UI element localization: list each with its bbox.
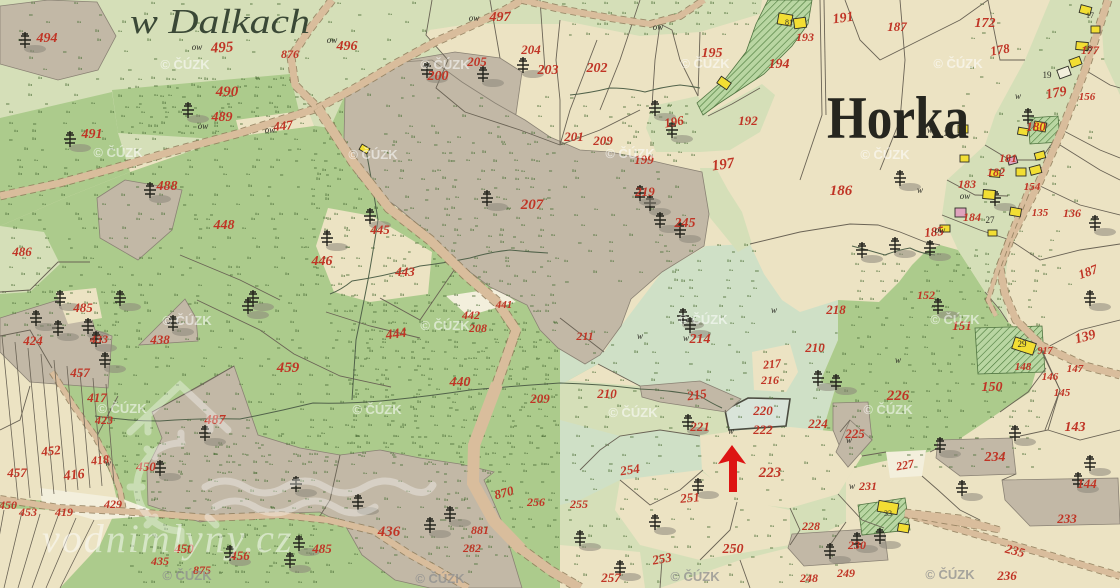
svg-text:18: 18 <box>1084 44 1092 53</box>
svg-text:433: 433 <box>89 332 108 346</box>
svg-text:203: 203 <box>537 63 559 78</box>
svg-text:193: 193 <box>796 30 814 44</box>
svg-text:191: 191 <box>832 10 855 28</box>
svg-text:223: 223 <box>758 465 782 481</box>
svg-text:416: 416 <box>62 467 85 484</box>
svg-text:256: 256 <box>526 495 545 509</box>
svg-text:ow: ow <box>653 22 664 32</box>
svg-text:© ČÚZK: © ČÚZK <box>420 318 470 333</box>
svg-text:214: 214 <box>689 332 711 347</box>
svg-text:© ČÚZK: © ČÚZK <box>348 147 398 162</box>
svg-text:183: 183 <box>958 177 976 191</box>
svg-text:282: 282 <box>462 541 481 555</box>
svg-text:443: 443 <box>394 264 415 279</box>
svg-text:© ČÚZK: © ČÚZK <box>160 57 210 72</box>
svg-text:230: 230 <box>847 538 866 552</box>
svg-text:136: 136 <box>1063 206 1081 220</box>
svg-text:429: 429 <box>103 497 122 511</box>
svg-text:ow: ow <box>935 225 946 235</box>
svg-text:254: 254 <box>618 461 641 479</box>
svg-text:220: 220 <box>752 403 773 418</box>
svg-text:154: 154 <box>1024 181 1041 193</box>
svg-text:197: 197 <box>711 155 736 174</box>
svg-text:222: 222 <box>752 422 773 437</box>
svg-text:w: w <box>728 426 734 436</box>
svg-text:459: 459 <box>276 360 300 376</box>
svg-text:224: 224 <box>807 416 828 431</box>
svg-text:© ČÚZK: © ČÚZK <box>863 402 913 417</box>
svg-text:w: w <box>849 481 855 491</box>
svg-text:490: 490 <box>215 84 239 100</box>
svg-text:210: 210 <box>804 340 825 355</box>
svg-text:491: 491 <box>81 127 103 142</box>
svg-text:497: 497 <box>489 10 512 25</box>
svg-text:186: 186 <box>830 183 853 199</box>
svg-text:147: 147 <box>1067 363 1084 375</box>
svg-text:494: 494 <box>36 31 58 46</box>
svg-text:221: 221 <box>689 419 710 434</box>
svg-text:424: 424 <box>22 333 43 348</box>
svg-text:© ČÚZK: © ČÚZK <box>93 145 143 160</box>
svg-text:248: 248 <box>799 571 818 585</box>
svg-text:444: 444 <box>384 326 408 344</box>
svg-text:217: 217 <box>761 356 782 372</box>
svg-text:250: 250 <box>722 542 744 557</box>
svg-text:© ČÚZK: © ČÚZK <box>678 312 728 327</box>
svg-text:440: 440 <box>449 375 471 390</box>
svg-text:204: 204 <box>520 42 541 57</box>
svg-text:Horka: Horka <box>827 85 969 151</box>
svg-text:w: w <box>917 185 923 195</box>
svg-text:184: 184 <box>963 210 981 224</box>
svg-text:w: w <box>637 331 643 341</box>
svg-text:27: 27 <box>986 215 996 225</box>
svg-text:441: 441 <box>495 299 513 311</box>
svg-text:452: 452 <box>39 442 61 459</box>
svg-text:457: 457 <box>69 365 90 380</box>
svg-text:150: 150 <box>982 380 1003 395</box>
svg-text:457: 457 <box>6 465 27 480</box>
svg-text:33: 33 <box>884 509 892 518</box>
svg-text:448: 448 <box>213 218 235 233</box>
svg-text:© ČÚZK: © ČÚZK <box>933 56 983 71</box>
svg-text:876: 876 <box>281 47 299 61</box>
svg-text:180: 180 <box>1026 119 1046 134</box>
svg-text:ow: ow <box>192 42 203 52</box>
svg-text:231: 231 <box>858 479 877 493</box>
svg-text:496: 496 <box>336 39 358 54</box>
svg-text:210: 210 <box>596 386 617 401</box>
svg-text:881: 881 <box>471 523 489 537</box>
svg-text:135: 135 <box>1032 207 1049 219</box>
svg-text:ow: ow <box>469 13 480 23</box>
svg-text:207: 207 <box>520 197 544 213</box>
svg-text:236: 236 <box>996 568 1017 583</box>
svg-text:438: 438 <box>149 332 170 347</box>
svg-text:215: 215 <box>685 386 708 404</box>
svg-text:w Dalkach: w Dalkach <box>130 2 310 41</box>
svg-text:249: 249 <box>836 566 855 580</box>
svg-text:ow: ow <box>327 35 338 45</box>
svg-text:152: 152 <box>917 288 935 302</box>
svg-text:172: 172 <box>975 16 996 31</box>
svg-text:81: 81 <box>785 18 793 27</box>
svg-text:© ČÚZK: © ČÚZK <box>860 147 910 162</box>
svg-text:w: w <box>846 435 852 445</box>
svg-text:ow: ow <box>198 121 209 131</box>
svg-text:201: 201 <box>563 129 584 144</box>
svg-text:© ČÚZK: © ČÚZK <box>162 568 212 583</box>
svg-text:192: 192 <box>738 113 758 128</box>
svg-text:w: w <box>105 458 111 468</box>
svg-text:© ČÚZK: © ČÚZK <box>608 405 658 420</box>
svg-text:© ČÚZK: © ČÚZK <box>420 57 470 72</box>
svg-text:194: 194 <box>769 57 790 72</box>
svg-text:187: 187 <box>887 19 907 34</box>
svg-text:ow: ow <box>265 125 276 135</box>
svg-text:489: 489 <box>211 110 233 125</box>
svg-text:255: 255 <box>569 497 588 511</box>
svg-text:436: 436 <box>377 524 401 540</box>
svg-text:486: 486 <box>11 244 32 259</box>
svg-text:211: 211 <box>575 329 593 343</box>
svg-text:© ČÚZK: © ČÚZK <box>680 56 730 71</box>
svg-text:257: 257 <box>600 570 621 585</box>
svg-text:29: 29 <box>1018 339 1028 349</box>
svg-text:w: w <box>683 333 689 343</box>
svg-text:145: 145 <box>1054 387 1071 399</box>
svg-text:© ČÚZK: © ČÚZK <box>925 567 975 582</box>
svg-text:233: 233 <box>1056 511 1077 526</box>
svg-text:w: w <box>1015 91 1021 101</box>
svg-text:485: 485 <box>311 541 332 556</box>
svg-text:146: 146 <box>1042 371 1059 383</box>
svg-text:208: 208 <box>468 321 487 335</box>
svg-text:445: 445 <box>369 222 390 237</box>
svg-text:495: 495 <box>209 39 234 57</box>
svg-text:453: 453 <box>18 505 37 519</box>
svg-text:219: 219 <box>634 184 655 199</box>
svg-text:17: 17 <box>1086 11 1094 20</box>
svg-text:© ČÚZK: © ČÚZK <box>97 401 147 416</box>
svg-text:© ČÚZK: © ČÚZK <box>670 569 720 584</box>
svg-text:© ČÚZK: © ČÚZK <box>415 571 465 586</box>
svg-text:143: 143 <box>1065 420 1086 435</box>
svg-text:148: 148 <box>1015 361 1032 373</box>
svg-text:917: 917 <box>1038 346 1054 357</box>
svg-text:156: 156 <box>1079 91 1096 103</box>
svg-text:© ČÚZK: © ČÚZK <box>352 402 402 417</box>
svg-text:w: w <box>771 305 777 315</box>
svg-text:19: 19 <box>1043 70 1053 80</box>
svg-text:© ČÚZK: © ČÚZK <box>605 146 655 161</box>
svg-text:234: 234 <box>984 450 1006 465</box>
svg-text:144: 144 <box>1077 476 1097 491</box>
svg-text:450: 450 <box>0 498 17 512</box>
svg-text:228: 228 <box>801 519 820 533</box>
svg-text:485: 485 <box>72 300 93 315</box>
svg-text:w: w <box>895 355 901 365</box>
svg-text:209: 209 <box>529 391 550 406</box>
svg-text:251: 251 <box>679 489 701 506</box>
svg-text:245: 245 <box>674 216 696 231</box>
svg-text:218: 218 <box>825 302 846 317</box>
svg-text:181: 181 <box>999 151 1017 165</box>
svg-text:182: 182 <box>987 165 1005 179</box>
svg-text:© ČÚZK: © ČÚZK <box>930 312 980 327</box>
svg-text:446: 446 <box>311 254 333 269</box>
svg-text:© ČÚZK: © ČÚZK <box>162 313 212 328</box>
svg-text:202: 202 <box>586 61 608 76</box>
svg-text:488: 488 <box>156 179 178 194</box>
svg-text:216: 216 <box>760 373 779 387</box>
svg-text:vodnimlyny.cz: vodnimlyny.cz <box>42 516 294 561</box>
svg-text:ow: ow <box>960 191 971 201</box>
